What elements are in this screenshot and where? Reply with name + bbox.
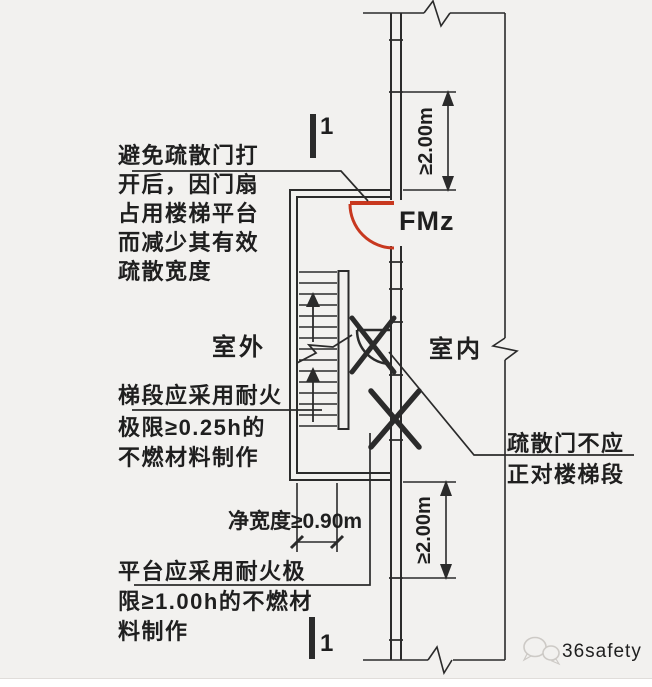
annotation-stair-fire: 梯段应采用耐火 极限≥0.25h的 不燃材料制作 [118,383,283,470]
stair-up-arrow2-icon [306,367,320,382]
stair-handrail [339,271,349,429]
stair-treads [299,272,337,426]
diagram-canvas: FMz ≥2.00m ≥2.00m 净宽度≥0.90m 避免疏散门打 开后，因门… [0,0,652,687]
enclosure-walls [290,190,391,480]
dimension-stair-width: 净宽度≥0.90m [228,483,362,552]
label-indoor: 室内 [429,335,483,363]
annotation-line: 避免疏散门打 [118,143,259,168]
stair-plan-drawing: FMz ≥2.00m ≥2.00m 净宽度≥0.90m 避免疏散门打 开后，因门… [0,0,652,687]
annotation-line: 占用楼梯平台 [118,201,259,226]
prohibited-door-upper [352,318,394,372]
stair-enclosure [290,190,391,480]
annotation-line: 限≥1.00h的不燃材 [118,589,313,614]
break-symbol-right-icon [493,338,517,360]
annotation-line: 平台应采用耐火极 [118,559,306,584]
section-mark-top: 1 [313,113,333,158]
stair-width-value: 净宽度≥0.90m [228,509,362,533]
bottom-strip [0,679,652,687]
annotation-line: 而减少其有效 [118,230,259,255]
wall-lines [391,13,401,660]
label-outdoor: 室外 [212,333,266,361]
fire-door-label: FMz [399,206,454,236]
section-mark-bottom: 1 [312,617,333,659]
annotation-line: 正对楼梯段 [507,462,625,487]
stair-flight [297,271,352,429]
upper-clearance-value: ≥2.00m [415,107,437,175]
annotation-line: 料制作 [118,619,189,644]
dimension-lower-clearance: ≥2.00m [403,480,456,580]
bottom-margin [0,679,652,687]
main-wall [389,13,403,660]
x-mark-upper-icon [352,318,394,372]
fire-door-fmz [350,203,394,248]
annotation-door-swing: 避免疏散门打 开后，因门扇 占用楼梯平台 而减少其有效 疏散宽度 [118,143,259,284]
watermark: 36safety [524,638,642,665]
annotation-line: 疏散宽度 [118,259,212,284]
annotation-line: 不燃材料制作 [118,445,259,470]
dimension-upper-clearance: ≥2.00m [403,90,456,192]
watermark-text: 36safety [562,641,642,662]
section-number-top: 1 [320,113,333,140]
annotation-line: 梯段应采用耐火 [118,383,283,408]
annotation-platform-fire: 平台应采用耐火极 限≥1.00h的不燃材 料制作 [118,559,313,644]
fire-door-swing-arc [350,204,394,248]
section-number-bottom: 1 [320,630,333,657]
annotation-door-facing: 疏散门不应 正对楼梯段 [507,431,625,487]
annotation-line: 疏散门不应 [507,431,625,456]
break-symbol-top-icon [424,1,450,26]
x-mark-lower-icon [371,391,419,447]
lower-clearance-value: ≥2.00m [413,496,435,564]
break-symbol-bottom-icon [428,647,452,673]
annotation-line: 开后，因门扇 [118,172,259,197]
annotation-line: 极限≥0.25h的 [118,415,266,440]
wechat-icon [524,638,559,665]
